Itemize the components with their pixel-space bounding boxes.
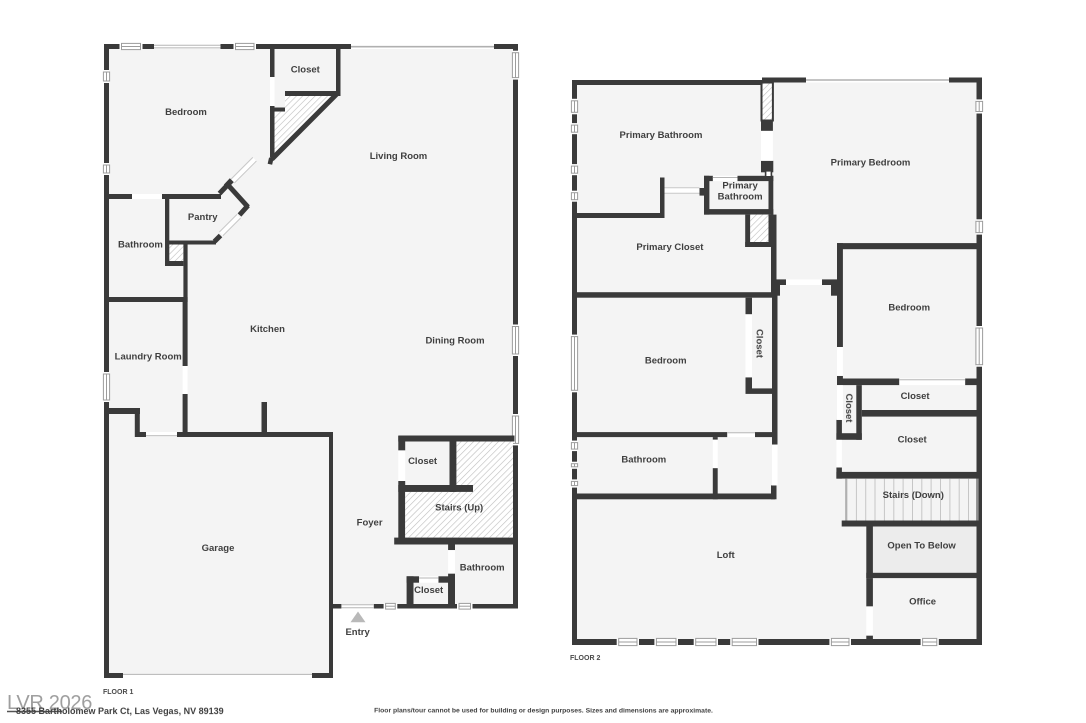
svg-text:Pantry: Pantry (188, 212, 218, 223)
svg-text:Closet: Closet (408, 456, 438, 467)
svg-text:Closet: Closet (754, 329, 765, 359)
svg-text:Bedroom: Bedroom (645, 355, 687, 366)
svg-text:Bathroom: Bathroom (621, 454, 666, 465)
svg-text:Primary Closet: Primary Closet (636, 242, 704, 253)
svg-text:Closet: Closet (843, 393, 854, 423)
svg-text:Entry: Entry (345, 627, 370, 638)
svg-text:Garage: Garage (202, 543, 235, 554)
svg-text:Open To Below: Open To Below (887, 541, 956, 552)
svg-text:Closet: Closet (901, 391, 931, 402)
svg-text:Stairs (Down): Stairs (Down) (883, 490, 944, 501)
svg-text:Dining Room: Dining Room (425, 335, 484, 346)
svg-text:Bedroom: Bedroom (165, 107, 207, 118)
svg-text:8355 Bartholomew Park Ct, Las: 8355 Bartholomew Park Ct, Las Vegas, NV … (16, 706, 224, 716)
svg-text:Primary: Primary (722, 180, 758, 191)
svg-text:Loft: Loft (717, 550, 736, 561)
svg-text:Primary Bedroom: Primary Bedroom (831, 157, 911, 168)
svg-text:Primary Bathroom: Primary Bathroom (620, 130, 703, 141)
svg-text:FLOOR 2: FLOOR 2 (570, 655, 600, 662)
svg-text:Living Room: Living Room (370, 151, 428, 162)
svg-text:Closet: Closet (898, 434, 928, 445)
svg-text:Stairs (Up): Stairs (Up) (435, 502, 483, 513)
svg-text:Laundry Room: Laundry Room (115, 352, 182, 363)
svg-text:FLOOR 1: FLOOR 1 (103, 689, 133, 696)
svg-text:Bathroom: Bathroom (460, 562, 505, 573)
svg-text:Bathroom: Bathroom (118, 240, 163, 251)
svg-text:Bathroom: Bathroom (718, 192, 763, 203)
svg-text:Foyer: Foyer (357, 517, 383, 528)
svg-text:Bedroom: Bedroom (888, 303, 930, 314)
svg-text:Floor plans/tour cannot be use: Floor plans/tour cannot be used for buil… (374, 707, 713, 714)
svg-text:Closet: Closet (414, 585, 444, 596)
svg-text:Office: Office (909, 597, 936, 608)
svg-text:Closet: Closet (291, 65, 321, 76)
svg-text:Kitchen: Kitchen (250, 324, 285, 335)
